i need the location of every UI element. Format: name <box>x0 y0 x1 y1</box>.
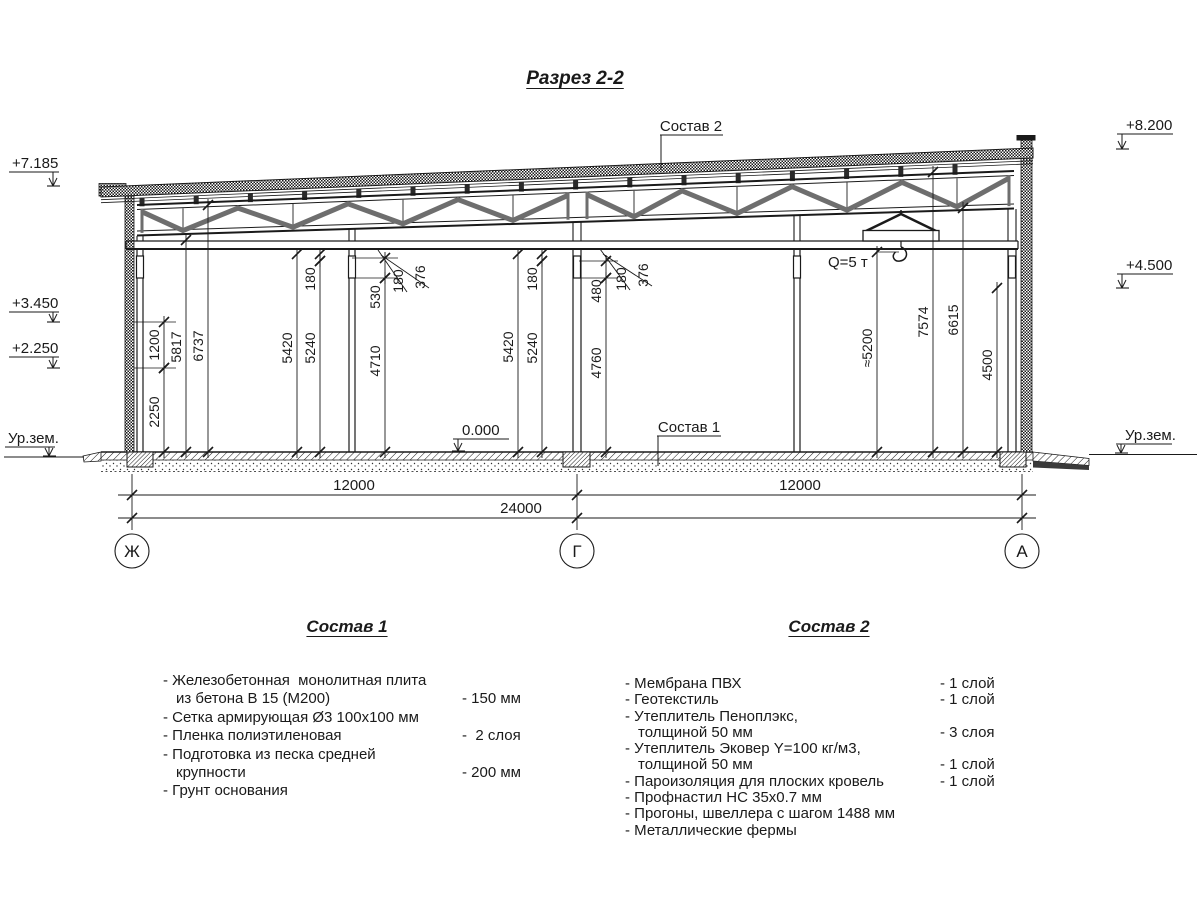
list-item: толщиной 50 мм- 3 слоя <box>625 725 1055 741</box>
dimension-label: 12000 <box>333 477 375 494</box>
crane-bracket <box>137 256 144 278</box>
crane-bracket <box>574 256 581 278</box>
elevation-mark: +7.185 <box>12 155 58 172</box>
composition-2-title: Состав 2 <box>625 617 1033 637</box>
list-item: - Грунт основания <box>163 782 583 800</box>
list-item: - Сетка армирующая Ø3 100х100 мм <box>163 709 583 727</box>
dimension-label: 480 <box>588 279 604 303</box>
composition-1-callout: Состав 1 <box>658 419 720 436</box>
elevation-mark: +8.200 <box>1126 117 1172 134</box>
axis-label: Г <box>572 542 581 561</box>
list-item: - Утеплитель Эковер Y=100 кг/м3, <box>625 741 1055 757</box>
dimension-label: 5817 <box>168 331 184 362</box>
dimension-label: ≈5200 <box>859 328 875 367</box>
dimension-label: 376 <box>412 265 428 289</box>
list-item: - Подготовка из песка средней <box>163 746 583 764</box>
composition-2-callout: Состав 2 <box>660 118 722 135</box>
dimension-label: 5420 <box>279 332 295 363</box>
composition-2-list: - Мембрана ПВХ- 1 слой - Геотекстиль- 1 … <box>625 676 1055 839</box>
list-item: - Утеплитель Пеноплэкс, <box>625 709 1055 725</box>
axis-label: А <box>1016 542 1028 561</box>
dimension-label: 2250 <box>146 396 162 427</box>
dimension-label: 5420 <box>500 331 516 362</box>
crane-bracket <box>349 256 356 278</box>
crane-hoist <box>863 210 939 261</box>
dimension-label: 24000 <box>500 500 542 517</box>
crane-bracket <box>1009 256 1016 278</box>
drawing-title: Разрез 2-2 <box>455 68 695 90</box>
dimension-label: 7574 <box>915 306 931 337</box>
crane-bracket <box>794 256 801 278</box>
dimension-label: 12000 <box>779 477 821 494</box>
list-item: - Пароизоляция для плоских кровель- 1 сл… <box>625 774 1055 790</box>
list-item: - Профнастил НС 35х0.7 мм <box>625 790 1055 806</box>
elevation-mark: +4.500 <box>1126 257 1172 274</box>
crane-capacity-label: Q=5 т <box>828 254 868 271</box>
list-item: - Мембрана ПВХ- 1 слой <box>625 676 1055 692</box>
zero-level-mark: 0.000 <box>462 422 500 439</box>
dimension-label: 4760 <box>588 347 604 378</box>
drawing-sheet: 2250120058176737542052401804710530542052… <box>0 0 1200 900</box>
list-item: толщиной 50 мм- 1 слой <box>625 757 1055 773</box>
elevation-mark: +2.250 <box>12 340 58 357</box>
list-item: крупности- 200 мм <box>163 764 583 782</box>
ground-level-mark: Ур.зем. <box>8 430 59 447</box>
dimension-label: 180 <box>524 267 540 291</box>
list-item: - Пленка полиэтиленовая- 2 слоя <box>163 727 583 745</box>
dimension-label: 180 <box>302 267 318 291</box>
dimension-label: 4500 <box>979 349 995 380</box>
list-item: - Металлические фермы <box>625 823 1055 839</box>
dimension-label: 6615 <box>945 304 961 335</box>
dimension-label: 5240 <box>302 332 318 363</box>
dimension-label: 1200 <box>146 329 162 360</box>
list-item: - Железобетонная монолитная плита <box>163 672 583 690</box>
dimension-label: 5240 <box>524 332 540 363</box>
dimension-label: 530 <box>367 285 383 309</box>
composition-1-title: Состав 1 <box>163 617 531 637</box>
dimension-label: 4710 <box>367 345 383 376</box>
list-item: - Прогоны, швеллера с шагом 1488 мм <box>625 806 1055 822</box>
dimension-label: 180 <box>390 269 406 293</box>
composition-1-list: - Железобетонная монолитная плита из бет… <box>163 672 583 801</box>
ground-level-mark: Ур.зем. <box>1125 427 1176 444</box>
axis-label: Ж <box>124 542 140 561</box>
dimension-label: 6737 <box>190 330 206 361</box>
elevation-mark: +3.450 <box>12 295 58 312</box>
list-item: из бетона В 15 (М200)- 150 мм <box>163 690 583 708</box>
list-item: - Геотекстиль- 1 слой <box>625 692 1055 708</box>
dimension-label: 180 <box>613 267 629 291</box>
dimension-label: 376 <box>635 263 651 287</box>
